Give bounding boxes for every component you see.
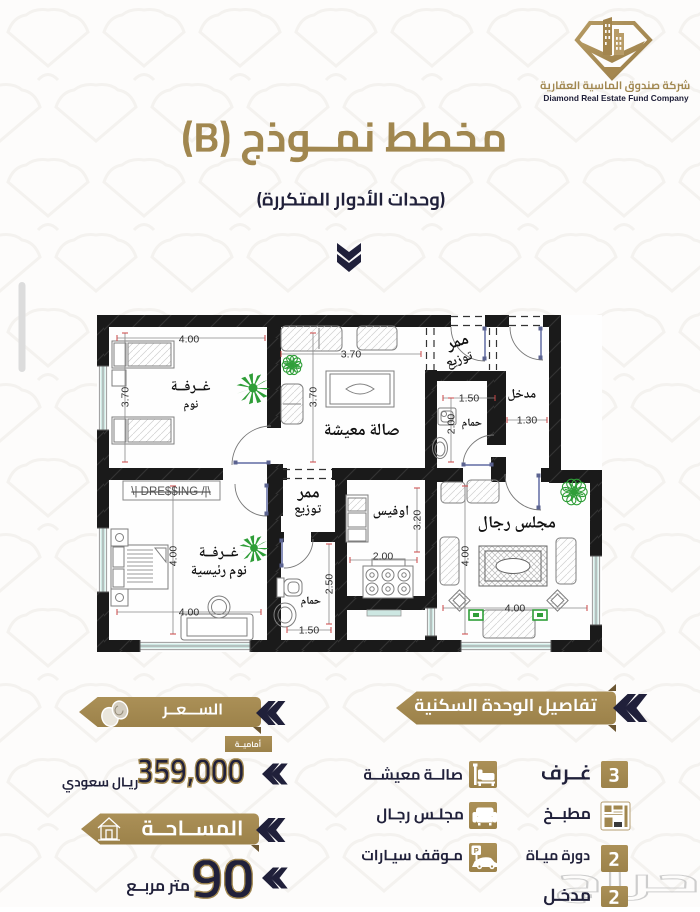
svg-text:3.70: 3.70 — [308, 387, 320, 408]
svg-text:4.00: 4.00 — [179, 334, 200, 346]
svg-text:1.50: 1.50 — [459, 393, 480, 405]
svg-text:2.50: 2.50 — [324, 574, 336, 595]
svg-text:3.20: 3.20 — [412, 510, 424, 531]
svg-text:4.00: 4.00 — [168, 546, 180, 567]
svg-text:4.00: 4.00 — [179, 607, 200, 619]
svg-text:Diamond Real Estate Fund Compa: Diamond Real Estate Fund Company — [543, 93, 689, 103]
svg-text:P: P — [474, 846, 479, 855]
svg-text:3.70: 3.70 — [120, 387, 132, 408]
svg-text:4.00: 4.00 — [505, 603, 526, 615]
svg-text:2.00: 2.00 — [446, 414, 458, 435]
svg-text:3.70: 3.70 — [341, 349, 362, 361]
svg-text:1.50: 1.50 — [299, 625, 320, 637]
svg-text:2.00: 2.00 — [373, 551, 394, 563]
svg-text:\| DRE$$ING /|\: \| DRE$$ING /|\ — [131, 486, 211, 498]
svg-text:4.00: 4.00 — [460, 546, 472, 567]
svg-text:1.30: 1.30 — [517, 415, 538, 427]
